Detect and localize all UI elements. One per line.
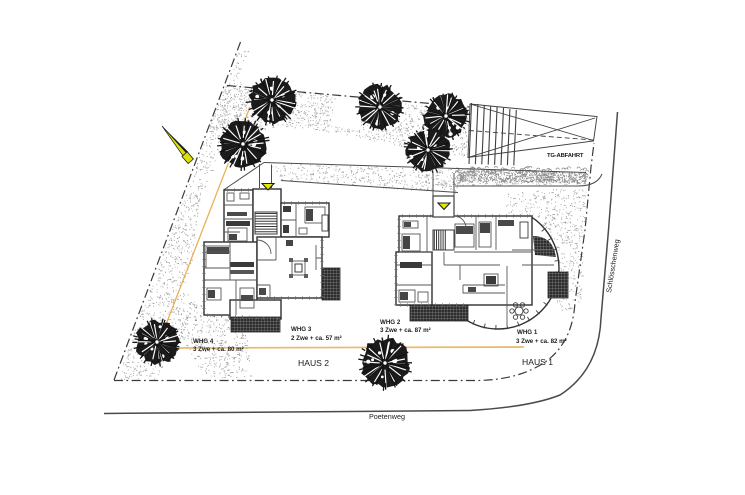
svg-text:WHG 2: WHG 2 xyxy=(380,319,401,326)
svg-text:3 Zwe + ca. 80 m²: 3 Zwe + ca. 80 m² xyxy=(193,346,244,353)
svg-text:Poetenweg: Poetenweg xyxy=(369,412,405,421)
svg-text:HAUS 2: HAUS 2 xyxy=(298,358,329,368)
svg-text:HAUS 1: HAUS 1 xyxy=(522,357,553,367)
svg-text:3 Zwe + ca. 87 m²: 3 Zwe + ca. 87 m² xyxy=(380,327,431,334)
svg-text:WHG 3: WHG 3 xyxy=(291,326,312,333)
svg-text:TG-ABFAHRT: TG-ABFAHRT xyxy=(547,153,584,159)
svg-text:3 Zwe + ca. 82 m²: 3 Zwe + ca. 82 m² xyxy=(516,338,567,345)
svg-text:2 Zwe + ca. 57 m²: 2 Zwe + ca. 57 m² xyxy=(291,335,342,342)
svg-text:WHG 4: WHG 4 xyxy=(193,338,214,345)
svg-text:WHG 1: WHG 1 xyxy=(517,329,538,336)
